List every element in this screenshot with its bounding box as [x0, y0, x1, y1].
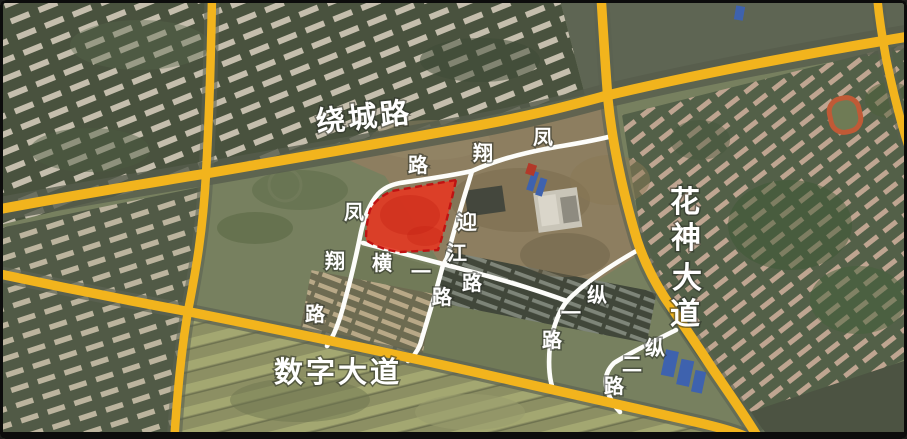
- svg-text:花: 花: [670, 185, 700, 220]
- svg-text:路: 路: [432, 285, 453, 309]
- svg-text:翔: 翔: [324, 249, 345, 273]
- map-image-frame: 绕城路 数字大道 花 神 大 道 路 翔 凤 凤 翔 路 迎 江 路 横 一 路: [0, 0, 907, 439]
- svg-text:路: 路: [462, 271, 483, 295]
- svg-text:凤: 凤: [344, 200, 364, 224]
- svg-text:迎: 迎: [457, 210, 477, 234]
- svg-text:神: 神: [671, 221, 701, 256]
- svg-text:江: 江: [447, 241, 467, 265]
- svg-text:道: 道: [670, 297, 700, 332]
- svg-text:翔: 翔: [472, 141, 493, 165]
- satellite-map: 绕城路 数字大道 花 神 大 道 路 翔 凤 凤 翔 路 迎 江 路 横 一 路: [0, 0, 907, 439]
- svg-text:路: 路: [305, 302, 326, 326]
- label-shuzi: 数字大道: [274, 355, 402, 389]
- svg-text:纵: 纵: [587, 283, 607, 307]
- svg-text:凤: 凤: [533, 125, 553, 149]
- parcel-texture: [407, 226, 443, 246]
- svg-text:路: 路: [408, 153, 429, 177]
- sports-track: [827, 95, 863, 134]
- svg-text:纵: 纵: [645, 336, 665, 360]
- svg-text:横: 横: [372, 251, 393, 275]
- svg-text:二: 二: [622, 352, 642, 376]
- svg-text:一: 一: [561, 301, 581, 325]
- svg-text:路: 路: [542, 328, 563, 352]
- svg-text:大: 大: [672, 261, 702, 296]
- svg-text:路: 路: [604, 374, 625, 398]
- svg-text:一: 一: [411, 260, 431, 284]
